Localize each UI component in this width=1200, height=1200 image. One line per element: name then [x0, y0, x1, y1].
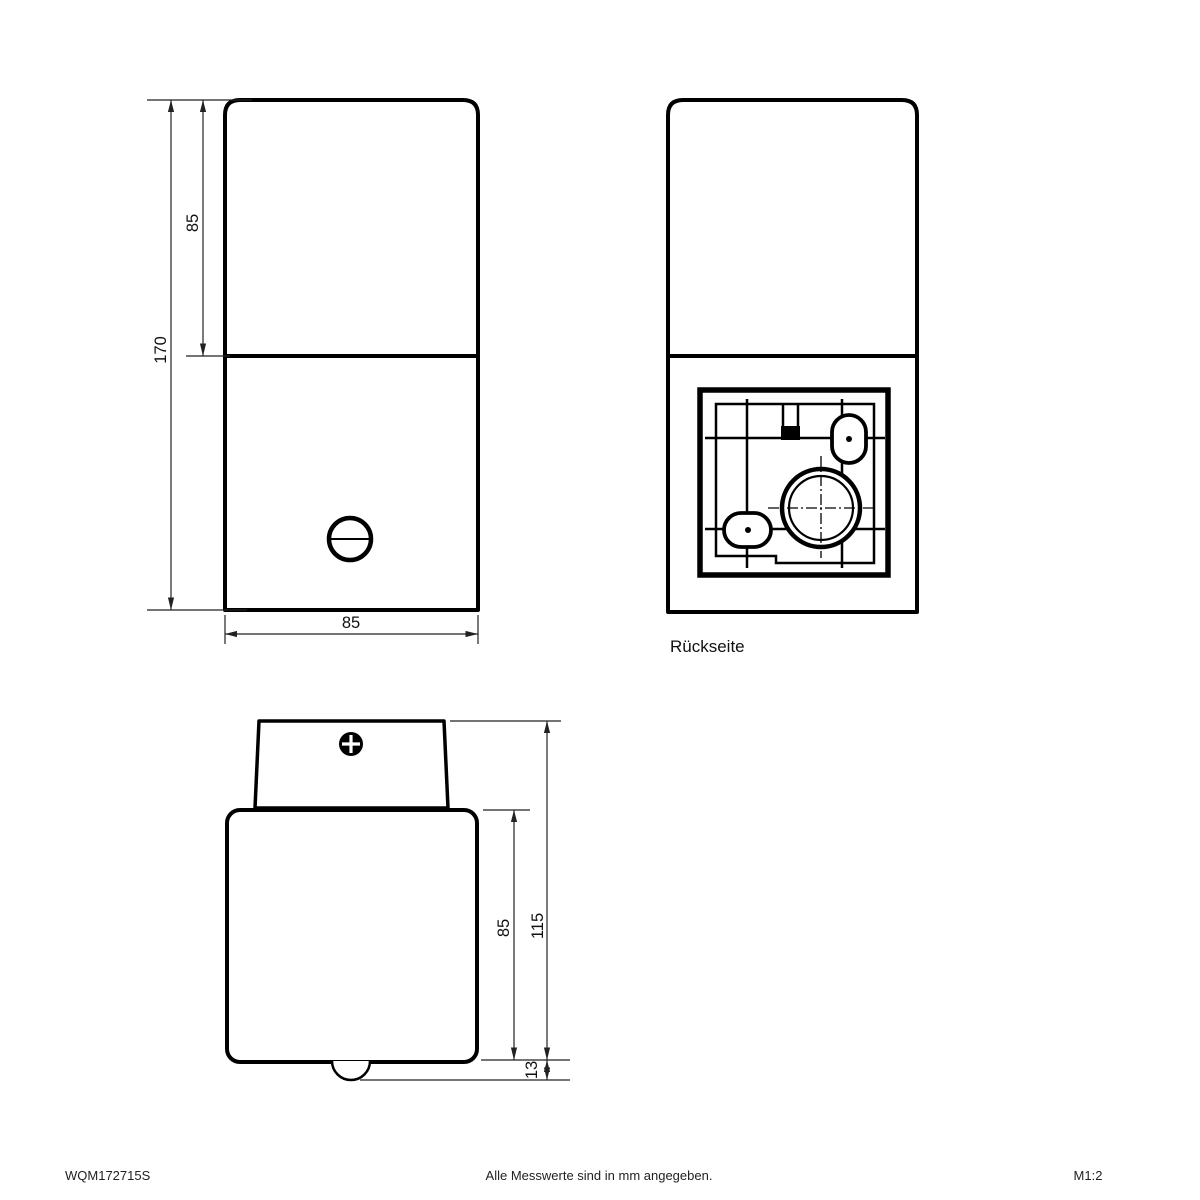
dimension-label-total-height: 170	[152, 336, 170, 364]
mounting-hole-center-dot	[846, 436, 852, 442]
dimension-label-sensor-protrusion: 13	[523, 1061, 541, 1079]
footer: WQM172715S Alle Messwerte sind in mm ang…	[65, 1168, 1102, 1183]
dimension-label-upper-height: 85	[184, 214, 202, 232]
article-number: WQM172715S	[65, 1168, 151, 1183]
technical-drawing: 170 85 85	[0, 0, 1200, 1200]
dimension-label-width: 85	[342, 614, 360, 632]
top-view: 85 115 13	[227, 721, 570, 1080]
mounting-plate	[700, 390, 888, 575]
dimension-label-total-depth: 115	[529, 913, 547, 939]
mounting-hole-center-dot	[745, 527, 751, 533]
top-body-outline	[227, 810, 477, 1062]
dimension-label-body-depth: 85	[495, 919, 513, 937]
drawing-sheet: 170 85 85	[0, 0, 1200, 1200]
phillips-screw-icon	[339, 732, 363, 756]
motion-sensor-bump	[332, 1061, 370, 1080]
back-view: Rückseite	[668, 100, 917, 656]
front-view: 170 85 85	[147, 100, 478, 644]
scale-indicator: M1:2	[1074, 1168, 1103, 1183]
screw-head-icon	[329, 518, 371, 560]
measurement-note: Alle Messwerte sind in mm angegeben.	[486, 1168, 713, 1183]
back-view-caption: Rückseite	[670, 637, 745, 656]
